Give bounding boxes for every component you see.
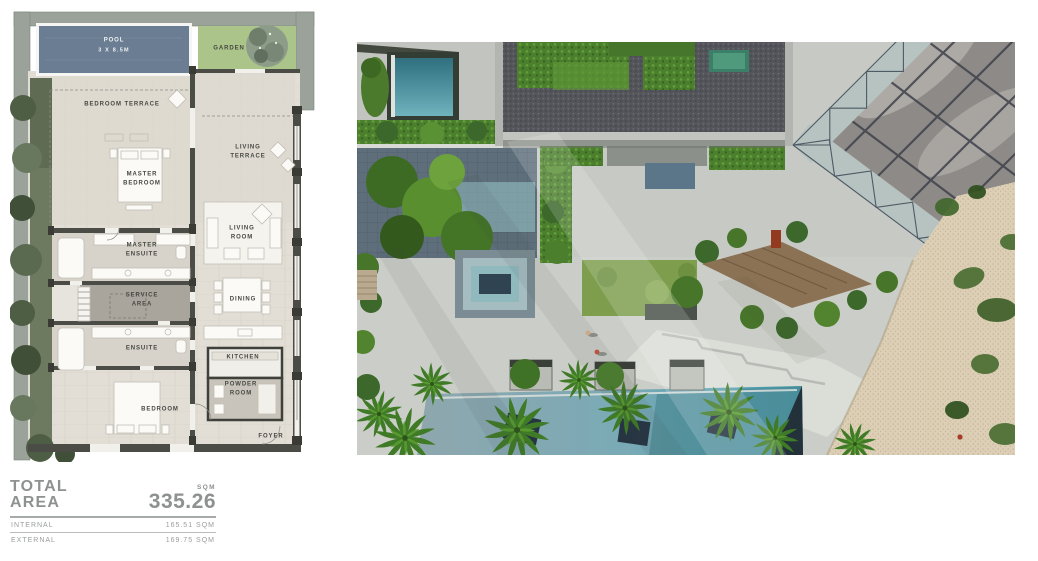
floor-plan: POOL 3 X 8.5M GARDEN BEDROOM TERRACE LIV… (10, 8, 336, 462)
master-bedroom-label: MASTER BEDROOM (119, 171, 165, 190)
powder-room-label: POWDER ROOM (221, 381, 261, 400)
page: POOL 3 X 8.5M GARDEN BEDROOM TERRACE LIV… (0, 0, 1038, 561)
bedroom-terrace-label: BEDROOM TERRACE (84, 100, 160, 109)
kitchen-label: KITCHEN (227, 353, 260, 362)
total-area-title: TOTAL AREA (10, 479, 68, 512)
external-label: EXTERNAL (11, 537, 56, 544)
garden-label: GARDEN (213, 44, 244, 53)
ensuite-label: ENSUITE (126, 344, 158, 353)
floor-plan-drawing (10, 8, 336, 462)
beach-person (957, 434, 962, 439)
green-roof-building (495, 42, 793, 148)
total-area-row: TOTAL AREA SQM 335.26 (10, 479, 216, 512)
total-area-value-wrap: SQM 335.26 (149, 484, 216, 512)
area-summary: TOTAL AREA SQM 335.26 INTERNAL 165.51 SQ… (10, 479, 216, 547)
dining-label: DINING (230, 295, 256, 304)
internal-value: 165.51 SQM (166, 522, 215, 529)
pool-label: POOL 3 X 8.5M (98, 37, 130, 56)
garden-tree (246, 25, 288, 67)
total-area-value: 335.26 (149, 492, 216, 512)
bedroom-label: BEDROOM (141, 405, 179, 414)
pool-dimensions: 3 X 8.5M (98, 47, 130, 56)
foyer-label: FOYER (258, 432, 283, 441)
total-title-line2: AREA (10, 495, 68, 511)
internal-label: INTERNAL (11, 522, 54, 529)
aerial-photo (357, 42, 1015, 455)
master-ensuite-label: MASTER ENSUITE (119, 242, 165, 261)
service-area-label: SERVICE AREA (120, 292, 164, 311)
external-area-row: EXTERNAL 169.75 SQM (10, 533, 216, 547)
living-room-label: LIVING ROOM (224, 225, 260, 244)
external-value: 169.75 SQM (166, 537, 215, 544)
aerial-photo-illustration (357, 42, 1015, 455)
total-title-line1: TOTAL (10, 479, 68, 495)
topleft-villa-pool (357, 42, 505, 148)
pool-name: POOL (98, 37, 130, 46)
internal-area-row: INTERNAL 165.51 SQM (10, 518, 216, 533)
living-terrace-label: LIVING TERRACE (228, 144, 268, 163)
